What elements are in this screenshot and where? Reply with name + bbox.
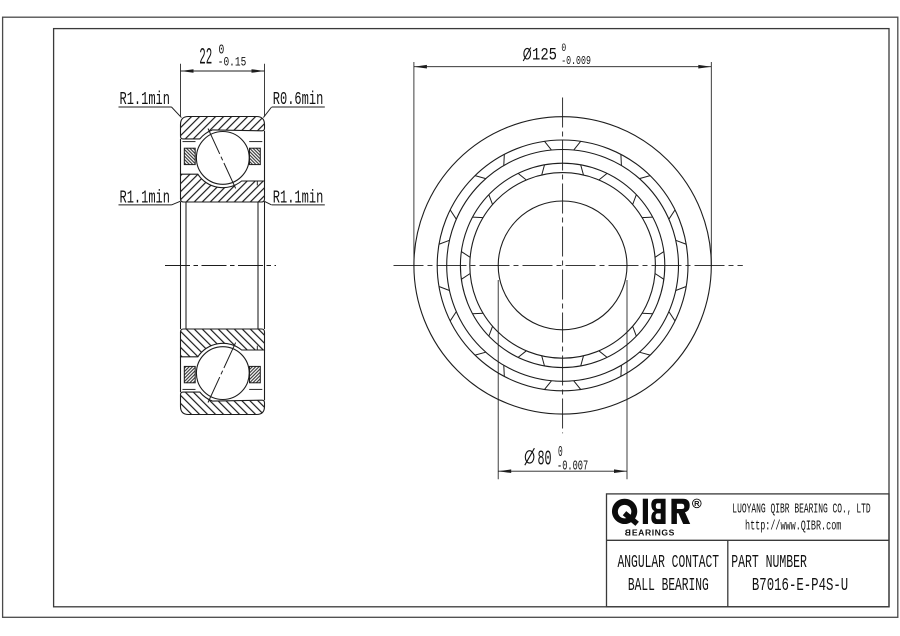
svg-text:PART NUMBER: PART NUMBER <box>731 552 807 574</box>
svg-text:80: 80 <box>538 448 552 472</box>
svg-text:B7016-E-P4S-U: B7016-E-P4S-U <box>752 575 848 596</box>
svg-text:ANGULAR CONTACT: ANGULAR CONTACT <box>618 552 720 574</box>
svg-text:R: R <box>694 499 700 508</box>
svg-text:http://www.QIBR.com: http://www.QIBR.com <box>745 519 841 535</box>
svg-text:EARINGS: EARINGS <box>632 527 675 537</box>
svg-text:0: 0 <box>558 445 563 461</box>
svg-text:LUOYANG QIBR BEARING CO., LTD: LUOYANG QIBR BEARING CO., LTD <box>732 502 870 518</box>
svg-text:BALL BEARING: BALL BEARING <box>628 575 709 597</box>
svg-text:0: 0 <box>561 42 566 55</box>
svg-text:-0.009: -0.009 <box>561 56 591 69</box>
svg-text:-0.007: -0.007 <box>557 460 588 474</box>
svg-text:-0.15: -0.15 <box>218 56 247 70</box>
svg-text:B: B <box>625 527 631 537</box>
svg-text:22: 22 <box>199 46 212 72</box>
svg-text:125: 125 <box>532 45 557 65</box>
